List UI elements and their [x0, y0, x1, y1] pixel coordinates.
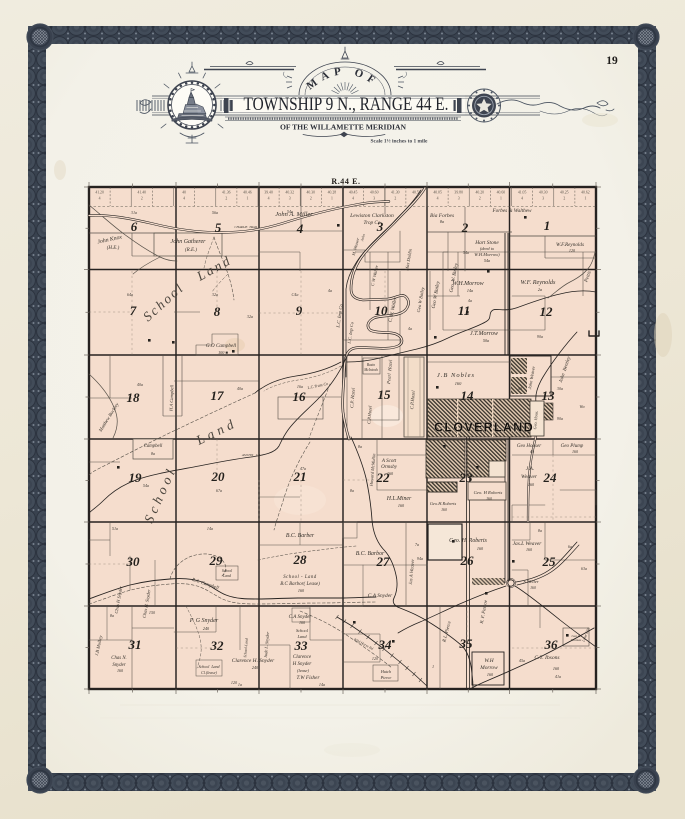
svg-text:4a: 4a [468, 298, 472, 303]
svg-text:Clarence H. Snyder: Clarence H. Snyder [232, 658, 275, 664]
svg-text:40.62: 40.62 [581, 191, 590, 195]
svg-text:11: 11 [458, 303, 470, 318]
svg-text:1: 1 [584, 197, 586, 201]
svg-text:120: 120 [569, 248, 576, 253]
svg-text:40.05: 40.05 [433, 191, 442, 195]
svg-text:54a: 54a [143, 483, 149, 488]
svg-text:25: 25 [542, 554, 557, 569]
svg-text:8a: 8a [151, 451, 155, 456]
svg-text:J.B Nobles: J.B Nobles [437, 372, 475, 379]
svg-text:1: 1 [432, 664, 434, 669]
svg-text:(H.E.): (H.E.) [107, 246, 120, 251]
svg-text:17: 17 [211, 388, 225, 403]
svg-text:160: 160 [299, 620, 305, 625]
svg-text:40.25: 40.25 [560, 191, 569, 195]
svg-text:C.T. Ibsons: C.T. Ibsons [534, 655, 559, 661]
svg-text:2: 2 [225, 197, 227, 201]
svg-text:47a: 47a [300, 466, 306, 471]
svg-text:TOWNSHIP 9 N., RANGE 44 E.: TOWNSHIP 9 N., RANGE 44 E. [244, 95, 449, 115]
svg-text:G.O Campbell: G.O Campbell [206, 343, 237, 349]
svg-text:Land: Land [222, 574, 231, 578]
svg-text:4: 4 [99, 197, 101, 201]
svg-text:J.A.: J.A. [526, 466, 534, 472]
svg-text:Geo. H Roberts: Geo. H Roberts [474, 490, 503, 495]
svg-text:Chas N.: Chas N. [111, 656, 126, 661]
svg-text:33: 33 [294, 638, 309, 653]
svg-text:T.W Fisher: T.W Fisher [297, 675, 321, 681]
svg-text:2: 2 [394, 197, 396, 201]
svg-text:7a: 7a [415, 542, 419, 547]
svg-text:Trop Co: Trop Co [364, 220, 381, 226]
svg-text:A Scott: A Scott [381, 459, 397, 464]
svg-text:School: School [222, 569, 232, 573]
svg-text:8: 8 [214, 304, 221, 319]
svg-text:16: 16 [293, 389, 307, 404]
svg-text:B.C Barbor( Lease): B.C Barbor( Lease) [280, 582, 320, 587]
svg-text:Cl.(lease): Cl.(lease) [201, 670, 217, 675]
svg-text:160: 160 [117, 668, 123, 673]
svg-text:R.44 E.: R.44 E. [331, 177, 360, 186]
svg-text:Land: Land [296, 634, 307, 639]
svg-text:John Gatherer: John Gatherer [171, 239, 207, 245]
svg-text:Hutch: Hutch [380, 669, 391, 674]
svg-text:(lease): (lease) [297, 668, 309, 673]
svg-text:(R.E.): (R.E.) [185, 248, 197, 253]
svg-text:40.60: 40.60 [370, 191, 379, 195]
svg-text:Thomas: Thomas [571, 638, 582, 642]
svg-text:Campbell: Campbell [144, 444, 163, 449]
svg-text:45a: 45a [519, 658, 525, 663]
svg-text:B.C. Barbor: B.C. Barbor [356, 551, 385, 557]
svg-text:31a: 31a [131, 210, 137, 215]
svg-text:39.40: 39.40 [264, 191, 273, 195]
svg-text:50a: 50a [483, 338, 489, 343]
svg-text:32a: 32a [247, 314, 253, 319]
svg-text:240: 240 [203, 626, 210, 631]
svg-text:41.05: 41.05 [518, 191, 527, 195]
svg-text:3: 3 [373, 197, 375, 201]
svg-text:240: 240 [252, 665, 259, 670]
svg-text:30a: 30a [557, 386, 563, 391]
svg-text:160: 160 [298, 588, 305, 593]
svg-text:4: 4 [437, 197, 439, 201]
svg-text:90a: 90a [537, 334, 543, 339]
svg-text:26: 26 [460, 553, 475, 568]
svg-text:160: 160 [486, 497, 492, 501]
svg-text:41.30: 41.30 [391, 191, 400, 195]
svg-text:24: 24 [543, 470, 558, 485]
svg-text:9: 9 [296, 303, 303, 318]
svg-text:4: 4 [183, 197, 185, 201]
svg-text:W.H: W.H [484, 658, 494, 664]
svg-text:41.40: 41.40 [138, 191, 147, 195]
svg-text:160: 160 [477, 546, 484, 551]
svg-text:41.36: 41.36 [222, 191, 231, 195]
svg-text:35: 35 [459, 636, 474, 651]
svg-text:Morrow: Morrow [479, 665, 498, 671]
svg-text:H.L.Miner: H.L.Miner [386, 496, 412, 502]
svg-text:41.20: 41.20 [95, 191, 104, 195]
svg-text:36: 36 [544, 637, 559, 652]
svg-text:19: 19 [606, 55, 618, 67]
svg-text:6: 6 [131, 219, 138, 234]
svg-text:B.C. Barber: B.C. Barber [286, 533, 315, 539]
svg-text:C4a: C4a [292, 292, 299, 297]
svg-text:2: 2 [479, 197, 481, 201]
svg-text:40: 40 [530, 449, 534, 454]
svg-text:2: 2 [563, 197, 565, 201]
svg-text:Pierce: Pierce [380, 675, 392, 680]
svg-text:160: 160 [526, 547, 532, 552]
svg-text:40.28: 40.28 [328, 191, 337, 195]
svg-text:19: 19 [129, 470, 143, 485]
svg-text:8a: 8a [350, 488, 354, 493]
svg-text:18: 18 [127, 390, 141, 405]
svg-text:160: 160 [487, 672, 494, 677]
svg-text:28: 28 [293, 552, 308, 567]
svg-text:4a: 4a [408, 326, 412, 331]
svg-text:CLOVERLAND: CLOVERLAND [434, 421, 534, 435]
svg-text:1a: 1a [238, 682, 242, 687]
svg-text:40.20: 40.20 [476, 191, 485, 195]
svg-text:4: 4 [521, 197, 523, 201]
svg-text:4a: 4a [328, 288, 332, 293]
svg-text:23: 23 [459, 470, 474, 485]
svg-text:160: 160 [528, 482, 535, 487]
svg-text:Forbes & Walthew: Forbes & Walthew [491, 208, 532, 214]
svg-text:94a: 94a [417, 556, 423, 561]
svg-text:S Weller: S Weller [523, 579, 538, 584]
svg-text:67a: 67a [216, 488, 222, 493]
svg-text:3: 3 [289, 197, 291, 201]
svg-text:160: 160 [441, 508, 447, 512]
svg-text:8a: 8a [358, 444, 362, 449]
svg-text:Geo.H.Roberts: Geo.H.Roberts [430, 501, 457, 506]
svg-text:C.A Snyder: C.A Snyder [368, 593, 393, 599]
svg-text:40.45: 40.45 [349, 191, 358, 195]
svg-text:56a: 56a [212, 210, 218, 215]
svg-text:ASOTIN CR: ASOTIN CR [241, 453, 261, 457]
svg-text:160: 160 [387, 471, 394, 476]
svg-text:34: 34 [378, 637, 393, 652]
svg-text:John A. Miller: John A. Miller [275, 211, 313, 218]
svg-text:40.30: 40.30 [539, 191, 548, 195]
svg-text:90a: 90a [557, 416, 563, 421]
svg-text:H.A Campbell: H.A Campbell [169, 384, 175, 412]
svg-text:Geo. H. Roberts: Geo. H. Roberts [449, 538, 487, 544]
svg-text:51a: 51a [112, 526, 118, 531]
svg-text:2: 2 [310, 197, 312, 201]
svg-text:5: 5 [215, 220, 222, 235]
svg-text:1: 1 [331, 197, 333, 201]
svg-text:Lewiston Clarkston: Lewiston Clarkston [349, 213, 394, 219]
svg-text:Wa: Wa [579, 404, 584, 409]
svg-text:160: 160 [553, 666, 560, 671]
svg-text:40.32: 40.32 [285, 191, 294, 195]
svg-text:40.60: 40.60 [497, 191, 506, 195]
svg-text:H Snyder: H Snyder [292, 662, 312, 667]
svg-text:2: 2 [461, 220, 469, 235]
svg-text:63a: 63a [581, 566, 587, 571]
svg-text:29: 29 [209, 553, 224, 568]
svg-text:1: 1 [246, 197, 248, 201]
svg-text:120: 120 [372, 656, 379, 661]
svg-text:20: 20 [211, 469, 226, 484]
svg-text:160: 160 [398, 503, 405, 508]
svg-text:Ormsby: Ormsby [381, 465, 398, 470]
svg-text:2: 2 [141, 197, 143, 201]
svg-text:4: 4 [352, 197, 354, 201]
svg-text:School: School [296, 628, 309, 633]
svg-text:(deed to: (deed to [480, 246, 495, 251]
svg-text:13: 13 [542, 388, 556, 403]
svg-text:40.46: 40.46 [243, 191, 252, 195]
svg-text:40.30: 40.30 [307, 191, 316, 195]
svg-text:W.H.Morrow): W.H.Morrow) [474, 252, 500, 257]
svg-text:31: 31 [128, 637, 142, 652]
svg-text:8a: 8a [440, 219, 444, 224]
svg-text:2a: 2a [538, 287, 542, 292]
svg-text:School - Land: School - Land [283, 575, 317, 580]
svg-text:41a: 41a [555, 674, 561, 679]
svg-text:CHARLIE TRAIL: CHARLIE TRAIL [234, 225, 257, 229]
svg-text:6a: 6a [568, 544, 572, 549]
svg-text:14a: 14a [207, 526, 213, 531]
svg-text:3: 3 [542, 197, 544, 201]
svg-text:14: 14 [461, 388, 475, 403]
svg-text:14a: 14a [319, 682, 325, 687]
svg-text:8a: 8a [538, 528, 542, 533]
svg-text:McIntosh: McIntosh [363, 368, 378, 372]
svg-text:Basin: Basin [367, 363, 375, 367]
svg-text:15: 15 [378, 387, 392, 402]
svg-text:54a: 54a [287, 209, 293, 214]
svg-text:W.F. Reynolds: W.F. Reynolds [521, 279, 556, 286]
svg-text:14a: 14a [467, 288, 473, 293]
svg-text:150: 150 [149, 610, 156, 615]
svg-text:21: 21 [293, 469, 307, 484]
svg-text:4: 4 [296, 221, 304, 236]
svg-text:12: 12 [540, 304, 554, 319]
svg-text:100 ■: 100 ■ [218, 350, 228, 355]
svg-text:3: 3 [458, 197, 460, 201]
svg-text:Scale 1½ inches to 1 mile: Scale 1½ inches to 1 mile [371, 138, 429, 145]
svg-text:160: 160 [455, 381, 462, 386]
svg-text:16a: 16a [297, 384, 303, 389]
svg-text:40: 40 [182, 191, 186, 195]
svg-text:54a: 54a [484, 258, 490, 263]
svg-text:160: 160 [530, 586, 536, 590]
svg-text:160: 160 [572, 449, 578, 454]
svg-text:32: 32 [210, 638, 225, 653]
svg-text:1: 1 [500, 197, 502, 201]
svg-text:J.T.Morrow: J.T.Morrow [470, 331, 498, 337]
svg-text:P. G Snyder: P. G Snyder [189, 618, 219, 624]
svg-text:40a: 40a [237, 386, 243, 391]
svg-text:54a: 54a [463, 250, 469, 255]
svg-text:40a: 40a [137, 382, 143, 387]
svg-text:School Land: School Land [198, 664, 220, 669]
svg-text:4: 4 [268, 197, 270, 201]
svg-text:39.80: 39.80 [454, 191, 463, 195]
svg-text:W.H.Morrow: W.H.Morrow [452, 281, 483, 287]
svg-text:30: 30 [126, 554, 141, 569]
svg-text:Clarence: Clarence [293, 655, 312, 660]
svg-text:Weaver: Weaver [521, 474, 538, 480]
svg-text:120: 120 [231, 680, 238, 685]
svg-text:7: 7 [130, 303, 137, 318]
svg-text:OF THE WILLAMETTE MERIDIAN: OF THE WILLAMETTE MERIDIAN [280, 124, 407, 132]
svg-text:10: 10 [375, 303, 389, 318]
svg-text:8a: 8a [110, 613, 114, 618]
svg-text:1: 1 [544, 218, 551, 233]
